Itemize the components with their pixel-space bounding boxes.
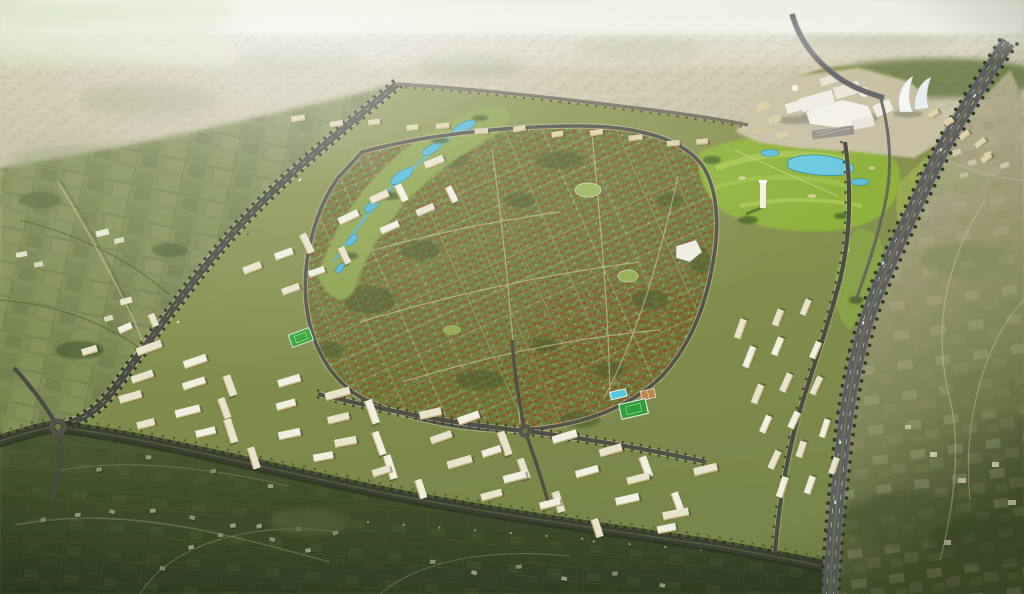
masterplan-aerial-render: Aerial render of a master-planned commun… (0, 0, 1024, 594)
aerial-render-stage: Aerial render of a master-planned commun… (0, 0, 1024, 594)
vignette (0, 0, 1024, 594)
